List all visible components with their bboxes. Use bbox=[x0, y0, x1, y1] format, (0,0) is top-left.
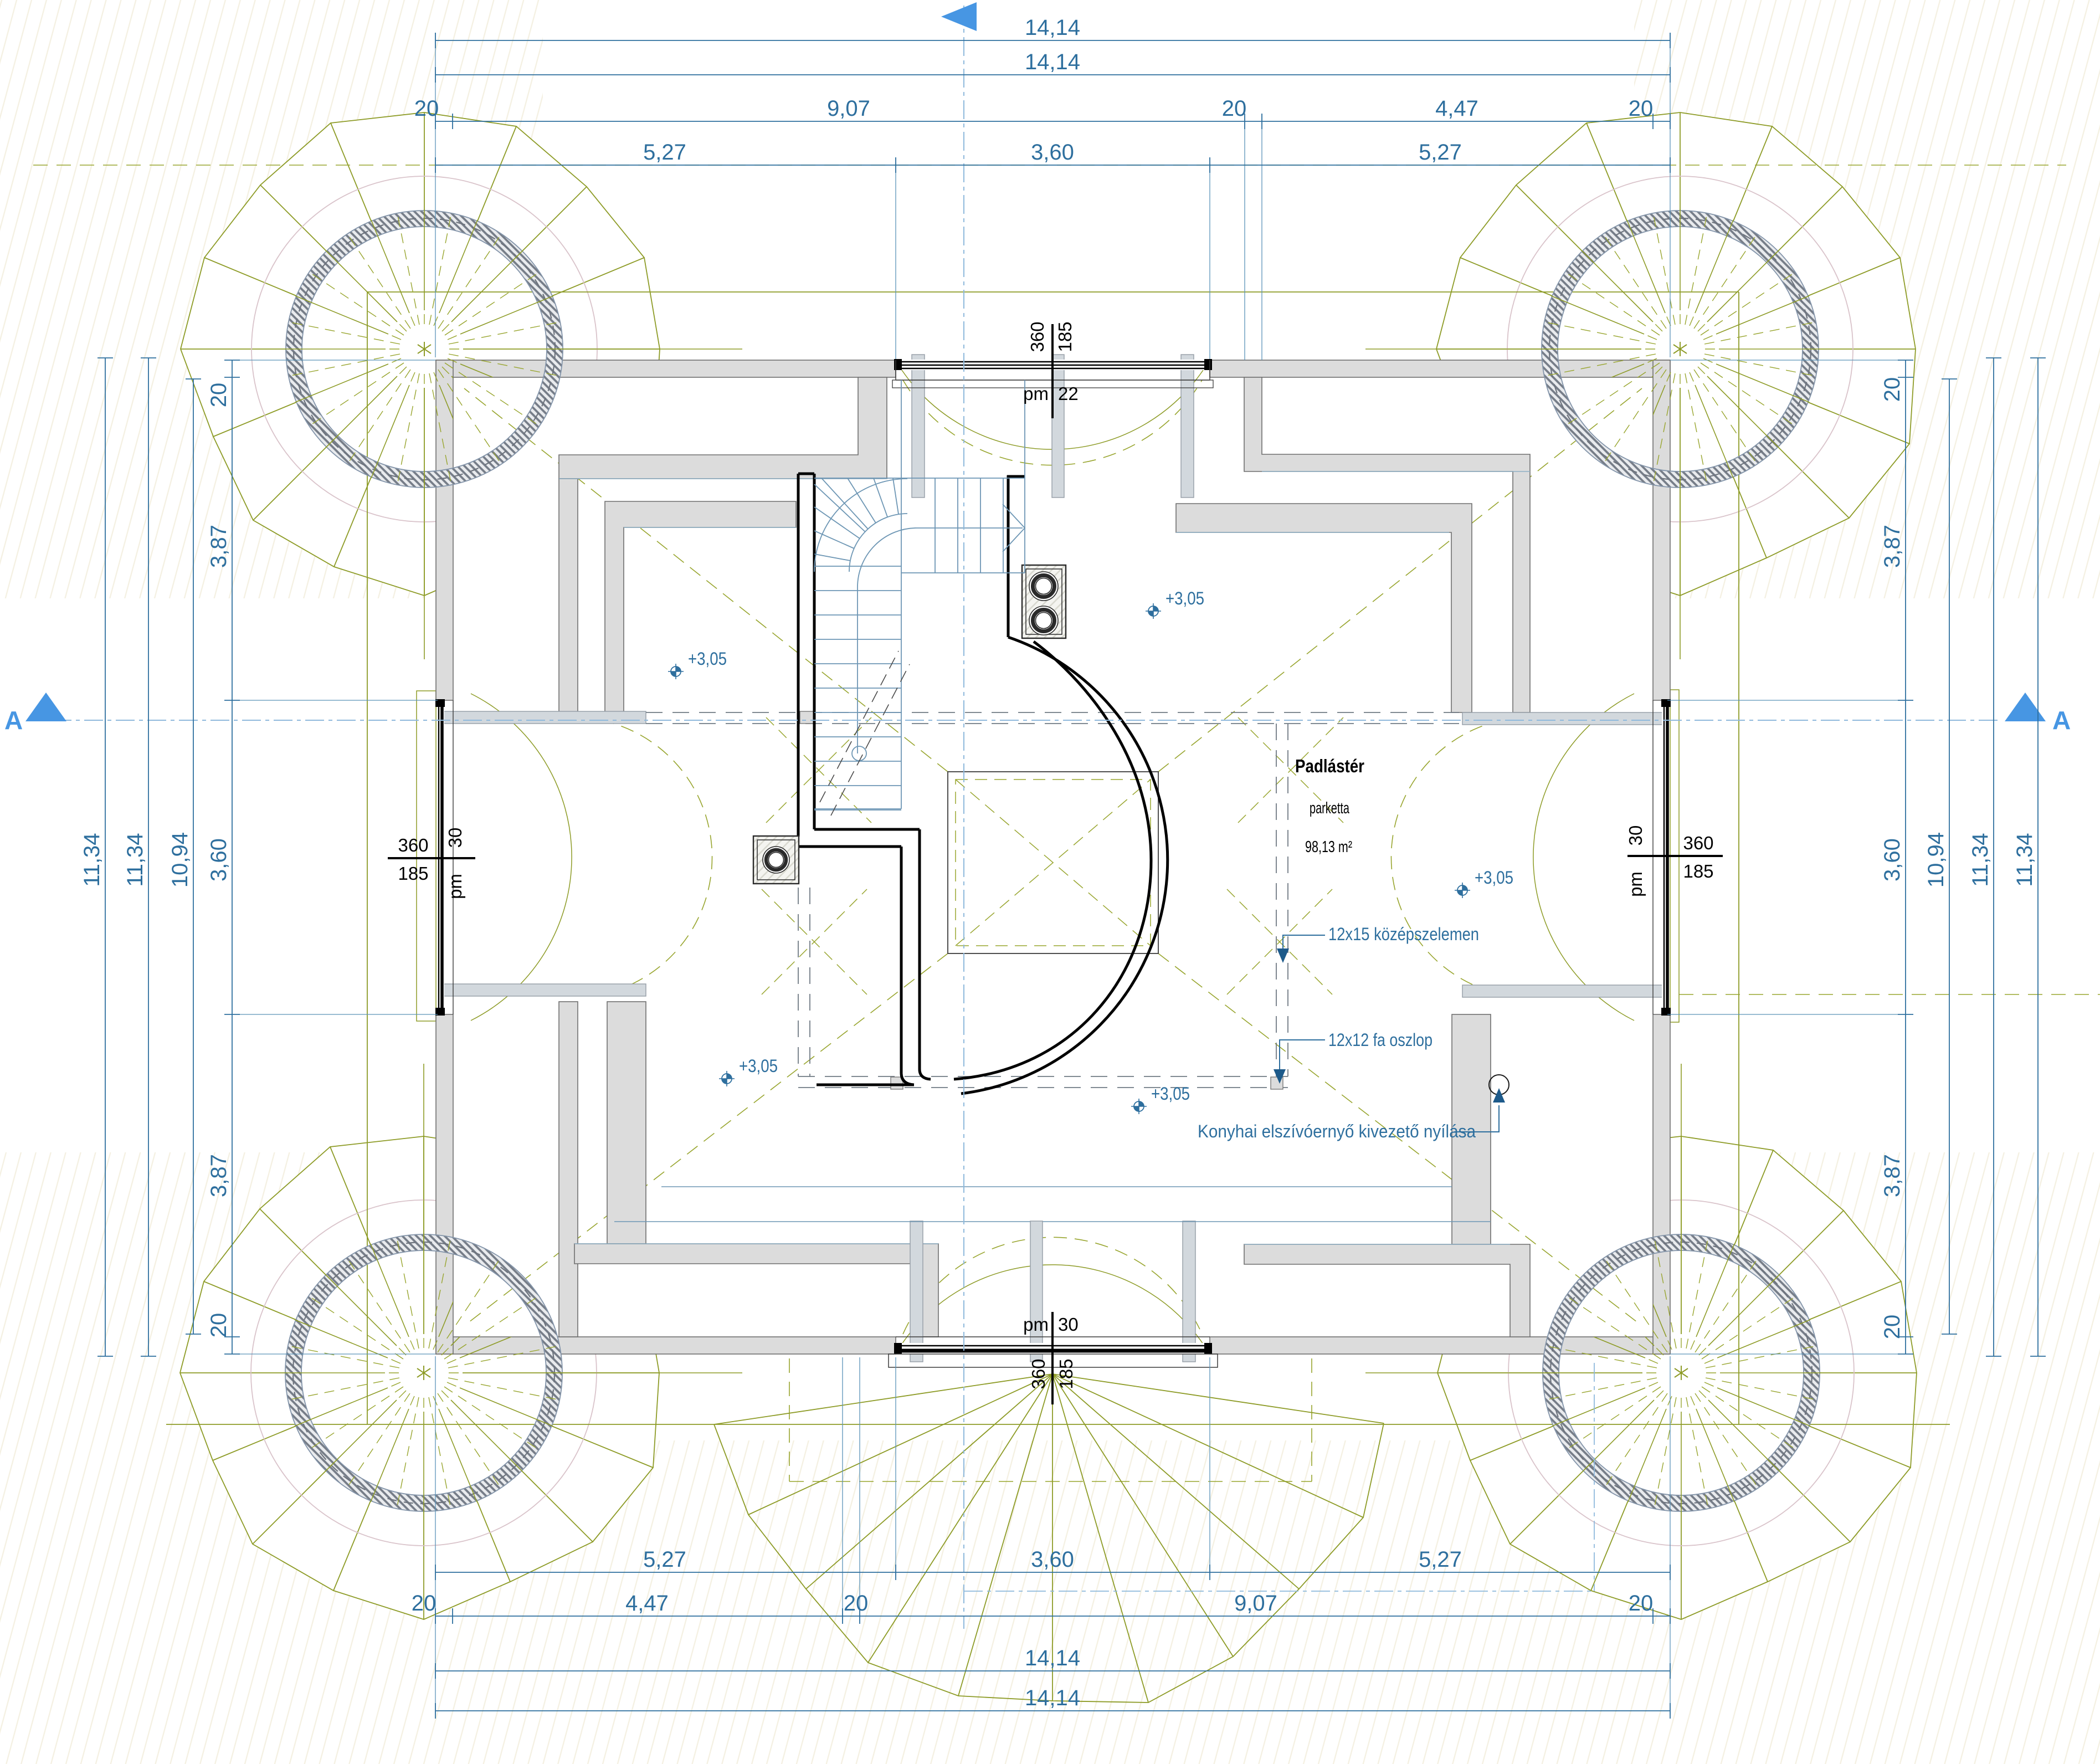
svg-text:3,60: 3,60 bbox=[1031, 140, 1074, 165]
svg-text:Padlástér: Padlástér bbox=[1295, 756, 1364, 776]
svg-text:pm: pm bbox=[445, 874, 465, 899]
svg-text:3,87: 3,87 bbox=[1880, 525, 1904, 568]
svg-text:+3,05: +3,05 bbox=[1475, 868, 1513, 888]
svg-text:14,14: 14,14 bbox=[1025, 50, 1080, 74]
svg-text:9,07: 9,07 bbox=[1234, 1591, 1277, 1616]
svg-text:12x15 középszelemen: 12x15 középszelemen bbox=[1328, 924, 1479, 944]
svg-text:5,27: 5,27 bbox=[1419, 1547, 1462, 1572]
svg-text:3,60: 3,60 bbox=[1031, 1547, 1074, 1572]
svg-text:360: 360 bbox=[1028, 1358, 1049, 1389]
svg-text:5,27: 5,27 bbox=[643, 1547, 686, 1572]
svg-text:14,14: 14,14 bbox=[1025, 16, 1080, 40]
svg-text:185: 185 bbox=[398, 863, 428, 884]
svg-text:185: 185 bbox=[1056, 1358, 1076, 1389]
svg-text:30: 30 bbox=[1625, 825, 1646, 846]
svg-text:20: 20 bbox=[1629, 96, 1654, 121]
svg-text:14,14: 14,14 bbox=[1025, 1646, 1080, 1670]
svg-text:10,94: 10,94 bbox=[168, 832, 192, 888]
svg-text:20: 20 bbox=[414, 96, 439, 121]
svg-text:98,13 m²: 98,13 m² bbox=[1305, 838, 1352, 856]
svg-text:3,87: 3,87 bbox=[207, 525, 231, 568]
svg-text:20: 20 bbox=[207, 1313, 231, 1338]
svg-text:11,34: 11,34 bbox=[2012, 833, 2037, 886]
svg-text:20: 20 bbox=[1880, 1315, 1904, 1340]
svg-text:pm: pm bbox=[1023, 383, 1049, 404]
svg-text:360: 360 bbox=[1683, 833, 1713, 853]
svg-text:+3,05: +3,05 bbox=[688, 649, 727, 669]
svg-text:+3,05: +3,05 bbox=[739, 1056, 778, 1076]
svg-text:pm: pm bbox=[1625, 871, 1646, 897]
svg-text:parketta: parketta bbox=[1310, 799, 1350, 817]
svg-text:30: 30 bbox=[1058, 1314, 1079, 1335]
svg-text:A: A bbox=[4, 706, 23, 735]
svg-text:Konyhai elszívóernyő kivezető: Konyhai elszívóernyő kivezető nyílása bbox=[1198, 1121, 1476, 1141]
svg-text:pm: pm bbox=[1023, 1314, 1049, 1335]
svg-text:11,34: 11,34 bbox=[1968, 833, 1993, 886]
svg-text:9,07: 9,07 bbox=[827, 96, 870, 121]
svg-text:11,34: 11,34 bbox=[80, 833, 104, 886]
svg-text:3,60: 3,60 bbox=[1880, 838, 1904, 881]
svg-text:185: 185 bbox=[1683, 861, 1713, 881]
svg-text:20: 20 bbox=[1222, 96, 1247, 121]
svg-text:360: 360 bbox=[1027, 321, 1048, 352]
svg-text:12x12 fa oszlop: 12x12 fa oszlop bbox=[1328, 1030, 1432, 1050]
svg-text:3,87: 3,87 bbox=[207, 1154, 231, 1197]
svg-text:4,47: 4,47 bbox=[625, 1591, 669, 1616]
svg-text:11,34: 11,34 bbox=[123, 833, 147, 886]
svg-text:185: 185 bbox=[1055, 321, 1075, 352]
svg-text:22: 22 bbox=[1058, 383, 1079, 404]
svg-text:20: 20 bbox=[1629, 1591, 1654, 1616]
svg-text:3,60: 3,60 bbox=[207, 838, 231, 881]
svg-text:5,27: 5,27 bbox=[643, 140, 686, 165]
svg-text:3,87: 3,87 bbox=[1880, 1154, 1904, 1197]
svg-text:20: 20 bbox=[844, 1591, 869, 1616]
svg-text:20: 20 bbox=[207, 383, 231, 408]
svg-text:20: 20 bbox=[412, 1591, 437, 1616]
svg-text:20: 20 bbox=[1880, 377, 1904, 402]
svg-text:+3,05: +3,05 bbox=[1165, 588, 1204, 608]
svg-text:+3,05: +3,05 bbox=[1151, 1084, 1190, 1104]
svg-text:360: 360 bbox=[398, 835, 428, 855]
svg-text:10,94: 10,94 bbox=[1924, 832, 1948, 888]
svg-text:30: 30 bbox=[445, 828, 465, 848]
svg-text:4,47: 4,47 bbox=[1435, 96, 1478, 121]
svg-text:5,27: 5,27 bbox=[1419, 140, 1462, 165]
svg-text:A: A bbox=[2052, 706, 2071, 735]
svg-text:14,14: 14,14 bbox=[1025, 1686, 1080, 1710]
